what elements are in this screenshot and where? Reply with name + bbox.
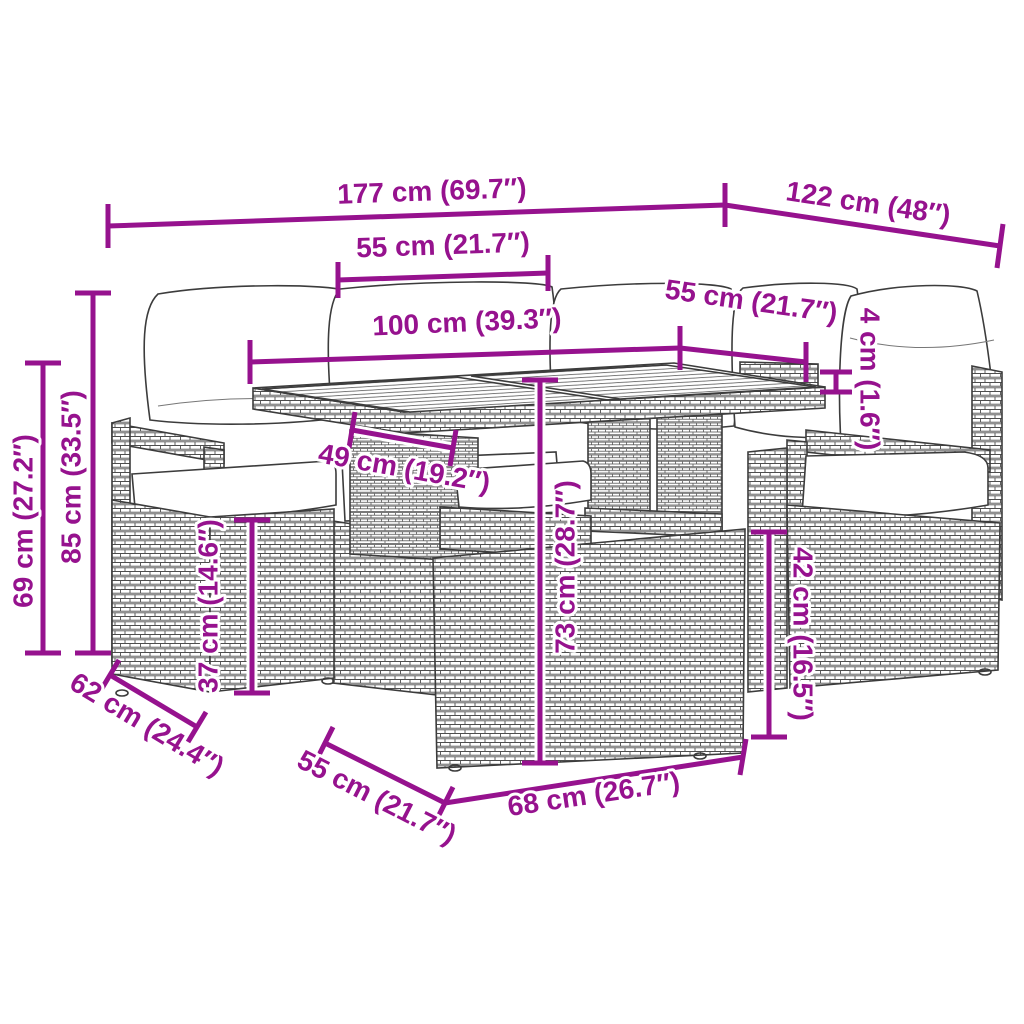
dim-label-table-height: 73 cm (28.7″) bbox=[549, 480, 580, 654]
dim-backrest-height: 85 cm (33.5″) bbox=[55, 293, 111, 653]
dim-label-total-width: 177 cm (69.7″) bbox=[337, 172, 527, 210]
dim-label-left-seat-width: 55 cm (21.7″) bbox=[356, 226, 531, 263]
dim-label-tabletop-thickness: 4 cm (1.6″) bbox=[855, 308, 886, 451]
left-armchair bbox=[112, 418, 336, 696]
bench-front bbox=[433, 529, 745, 768]
dim-label-backrest-height: 85 cm (33.5″) bbox=[55, 390, 86, 564]
dim-label-seat-height: 37 cm (14.6″) bbox=[192, 519, 223, 693]
dim-label-total-depth: 122 cm (48″) bbox=[784, 175, 953, 230]
dim-total-depth: 122 cm (48″) bbox=[725, 175, 1003, 268]
dim-label-armrest-height: 69 cm (27.2″) bbox=[7, 434, 38, 608]
dim-armrest-height: 69 cm (27.2″) bbox=[7, 363, 61, 653]
dimension-diagram: 177 cm (69.7″) 122 cm (48″) 55 cm (21.7″… bbox=[0, 0, 1024, 1024]
dim-label-bench-width: 68 cm (26.7″) bbox=[505, 766, 681, 822]
seat-cushion bbox=[802, 452, 988, 517]
chair-base-side bbox=[210, 509, 334, 692]
dim-label-side-seat-height: 42 cm (16.5″) bbox=[788, 547, 819, 721]
center-bench bbox=[433, 529, 745, 771]
